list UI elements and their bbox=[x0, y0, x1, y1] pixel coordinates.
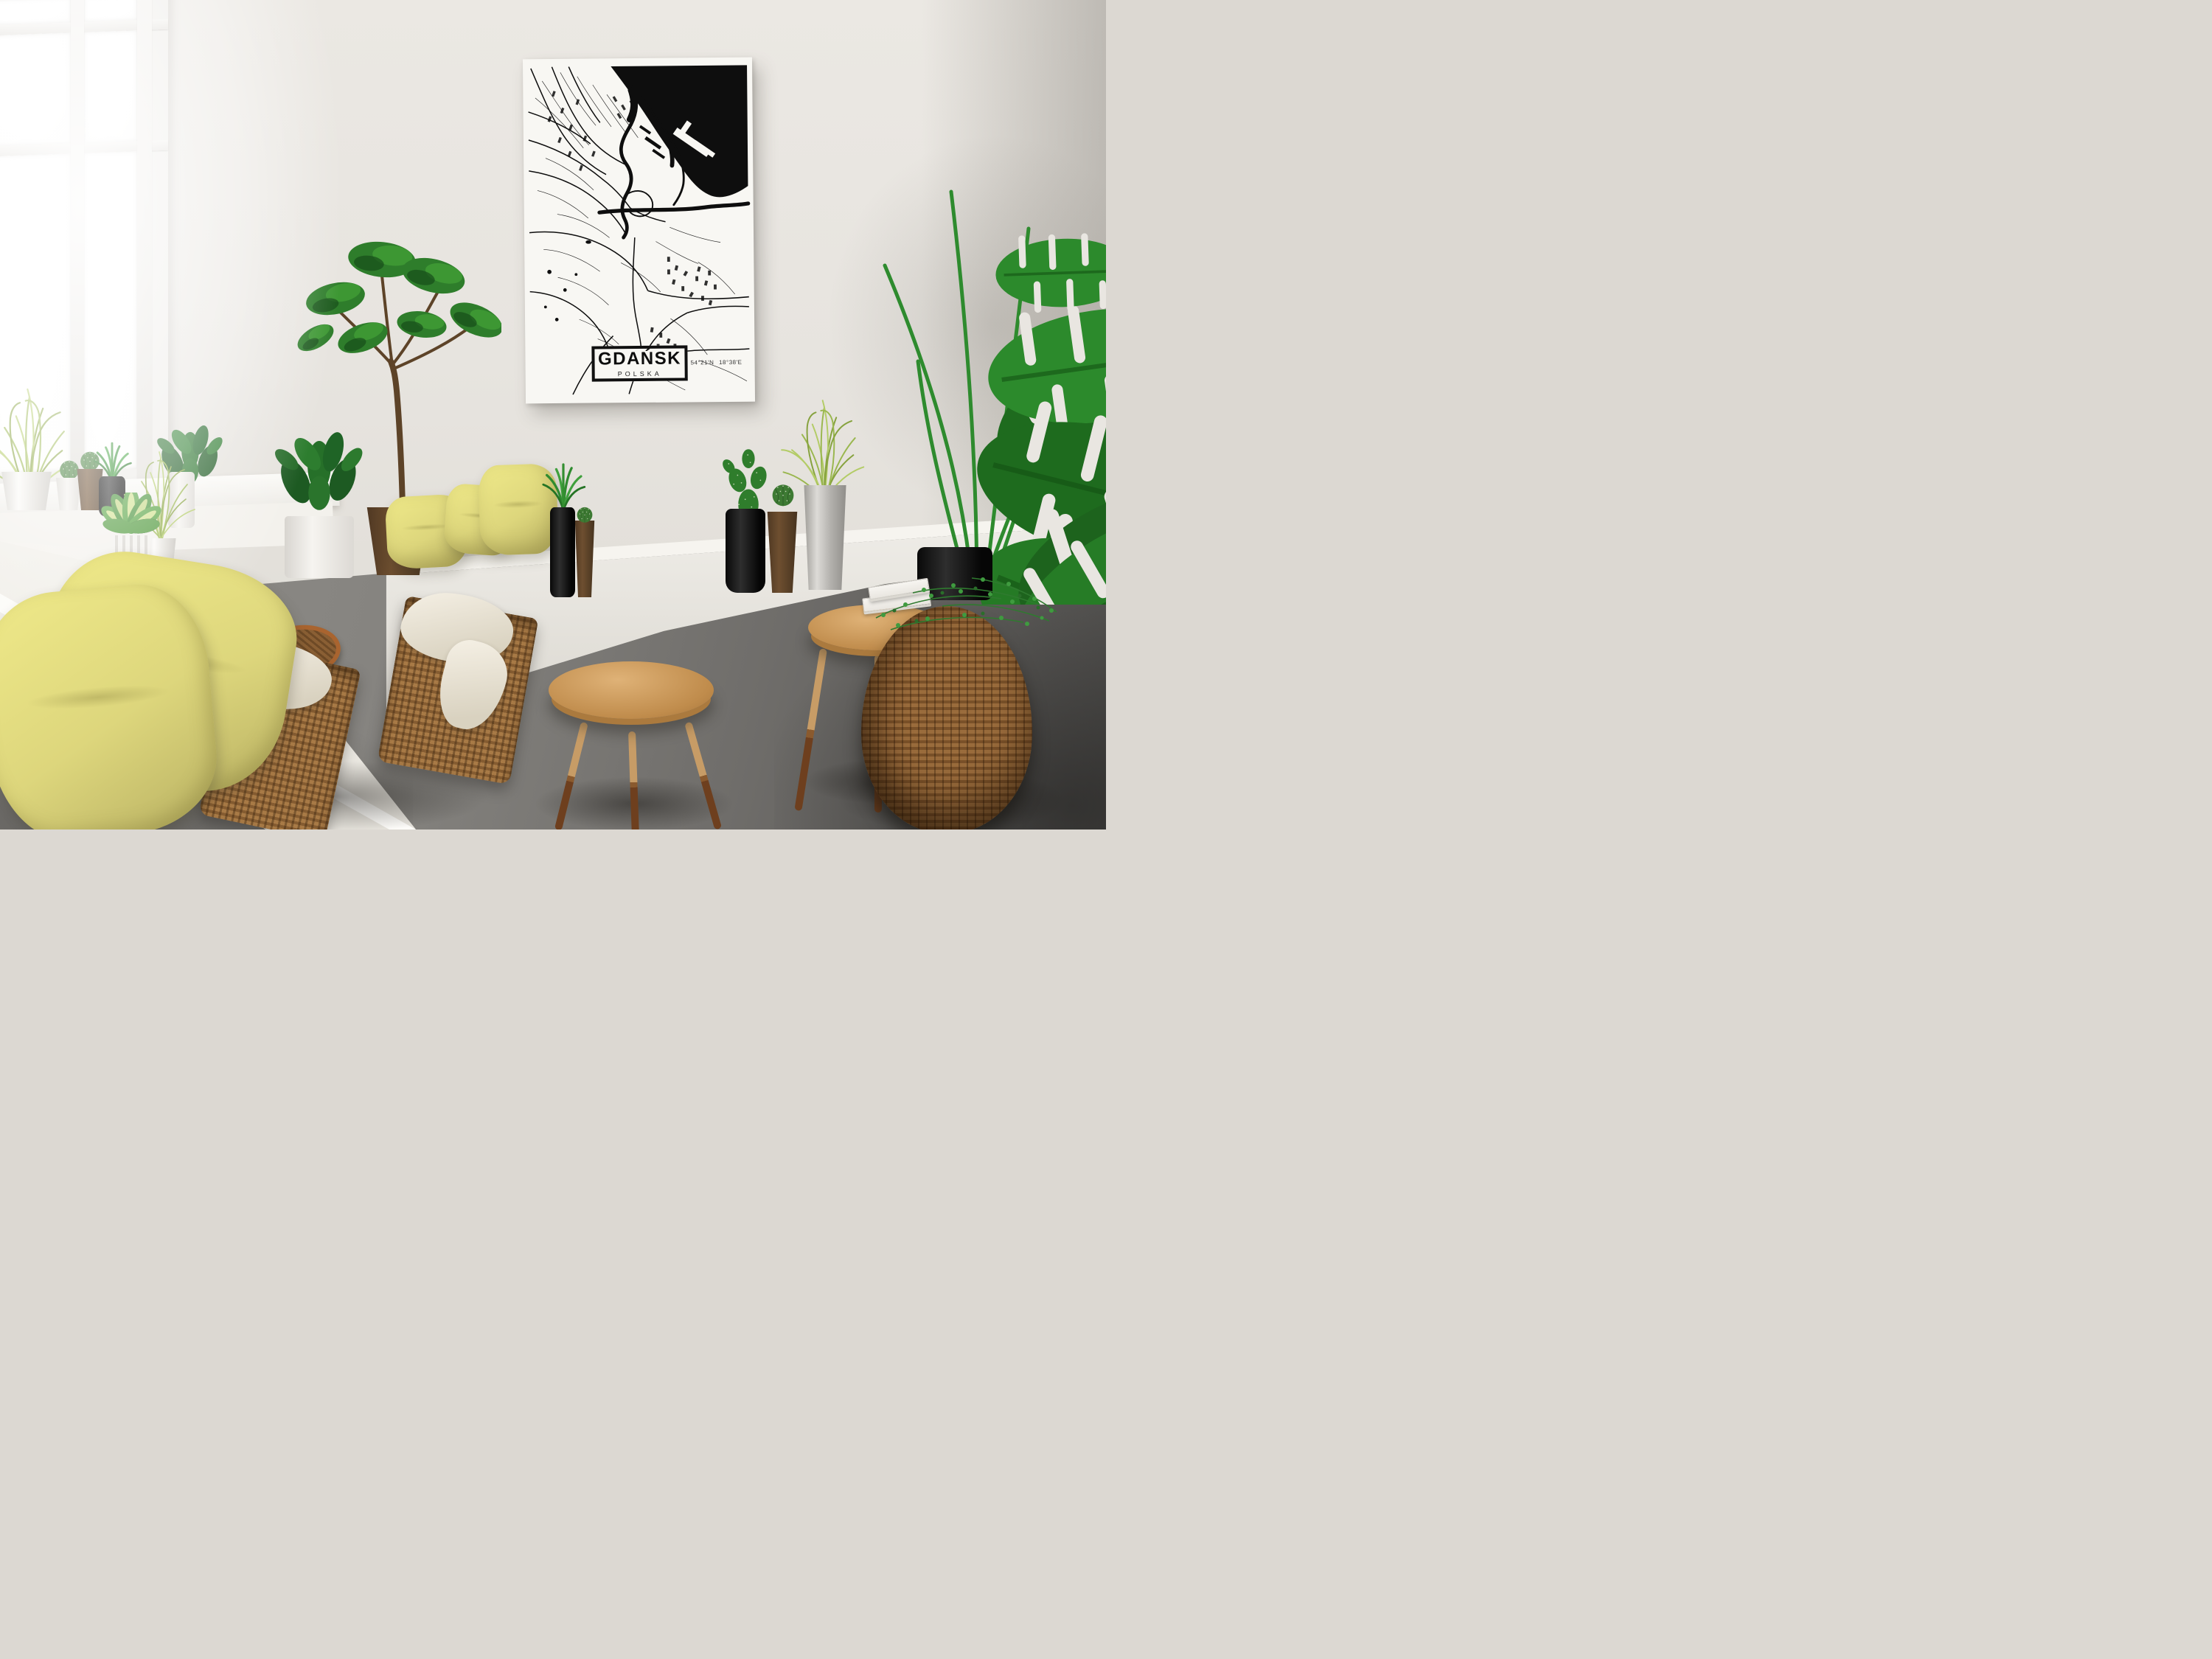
stool-leg bbox=[554, 722, 588, 829]
poster-country-subtitle: POLSKA bbox=[618, 369, 662, 378]
window-pane bbox=[84, 151, 137, 470]
living-room-photo: GDAŃSK POLSKA 54°21'N 18°38'E bbox=[0, 0, 1106, 829]
floor-pillow-front bbox=[0, 579, 223, 829]
poster-city-title: GDAŃSK bbox=[598, 349, 681, 368]
window-pane bbox=[0, 32, 71, 146]
monstera-plant bbox=[833, 125, 1106, 605]
trailing-vine-plant bbox=[854, 547, 1097, 647]
cactus-black-pot bbox=[726, 509, 765, 593]
stool-leg bbox=[794, 648, 827, 811]
sprig-plant bbox=[535, 459, 591, 512]
map-poster: GDAŃSK POLSKA 54°21'N 18°38'E bbox=[523, 58, 755, 404]
window-pane bbox=[84, 0, 137, 22]
tall-black-pot bbox=[550, 507, 575, 597]
white-bucket-pot bbox=[0, 472, 53, 510]
poster-coordinates: 54°21'N 18°38'E bbox=[691, 359, 750, 366]
stool-leg bbox=[684, 722, 722, 829]
window-pane bbox=[84, 30, 137, 143]
poster-label-box: GDAŃSK POLSKA bbox=[591, 345, 687, 381]
wooden-stool-center bbox=[549, 661, 714, 719]
window-pane bbox=[0, 0, 71, 25]
stool-leg bbox=[628, 731, 639, 829]
